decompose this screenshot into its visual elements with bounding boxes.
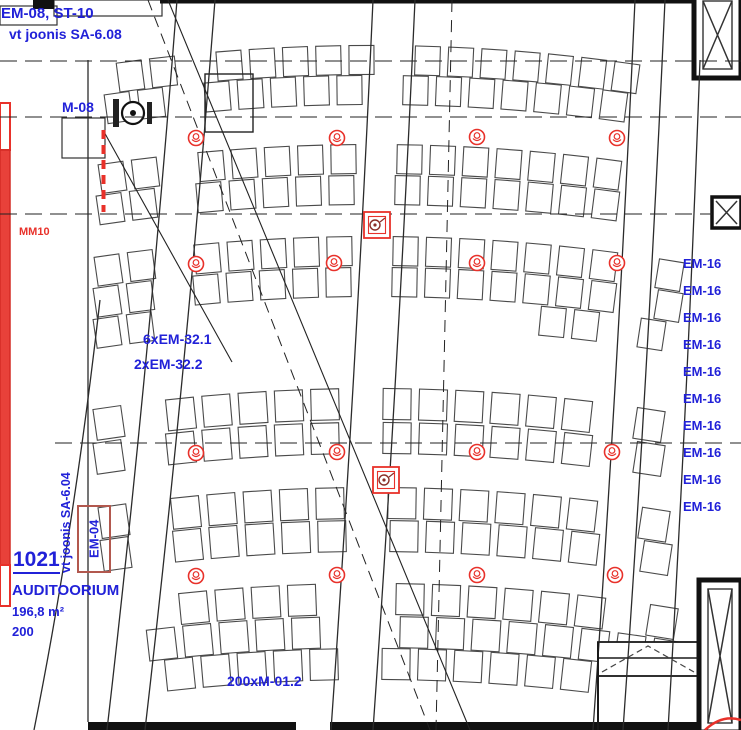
smoke-detector-icon: [610, 131, 625, 146]
seat: [495, 492, 525, 525]
seat: [546, 54, 574, 85]
seat: [489, 652, 519, 685]
seat: [216, 50, 243, 81]
seat: [274, 390, 303, 422]
smoke-detector-icon: [470, 568, 485, 583]
cable-label-em16: EM-16: [683, 446, 721, 460]
seat: [337, 75, 362, 104]
seat: [568, 531, 599, 565]
seat: [526, 182, 554, 213]
seat: [209, 525, 239, 558]
seat: [491, 240, 518, 271]
smoke-detector-icon: [470, 130, 485, 145]
seat: [561, 433, 592, 467]
cable-label-em16: EM-16: [683, 311, 721, 325]
seat: [533, 528, 564, 562]
seat: [561, 399, 592, 433]
seat: [383, 422, 411, 453]
plan-line: [168, 0, 470, 730]
seat: [435, 618, 464, 650]
seat: [304, 76, 330, 106]
seat: [654, 290, 683, 323]
plan-structure: [88, 722, 296, 730]
seat: [400, 617, 429, 649]
seat: [637, 318, 666, 350]
seat: [638, 507, 670, 542]
seat: [245, 523, 275, 556]
cable-label-em16: EM-16: [683, 500, 721, 514]
cable-label-em16: EM-16: [683, 473, 721, 487]
seat: [588, 281, 616, 313]
seat: [279, 489, 308, 521]
seat: [171, 496, 202, 530]
seat: [229, 179, 256, 210]
seat: [96, 193, 125, 225]
seat: [566, 498, 597, 532]
seat: [611, 61, 640, 93]
seat: [424, 268, 450, 298]
seat: [497, 525, 527, 558]
see-drawing-label-sa608: vt joonis SA-6.08: [9, 27, 122, 42]
seat: [556, 277, 584, 309]
plan-line: [103, 130, 232, 362]
plan-structure: [330, 722, 741, 730]
seat: [490, 271, 517, 302]
seat: [528, 151, 556, 182]
seat: [238, 425, 268, 458]
seat: [93, 406, 125, 441]
plan-structure: [0, 103, 10, 150]
seat: [543, 625, 574, 659]
seat: [255, 619, 285, 652]
seat: [93, 440, 125, 475]
pump-symbol: [113, 99, 152, 127]
panel-label-em04: EM-04: [87, 520, 101, 558]
seat: [454, 390, 484, 422]
seat: [382, 648, 410, 679]
seat: [560, 154, 588, 186]
seat: [226, 271, 253, 302]
seat: [215, 588, 245, 621]
smoke-detector-icon: [189, 446, 204, 461]
seat: [503, 588, 533, 621]
seat: [462, 147, 489, 177]
seat: [459, 490, 489, 523]
cable-label-em16: EM-16: [683, 338, 721, 352]
seat: [593, 158, 621, 190]
room-number: 1021: [13, 549, 60, 574]
seat: [298, 145, 324, 175]
cable-label-em16: EM-16: [683, 365, 721, 379]
room-capacity: 200: [12, 625, 34, 639]
seat: [633, 408, 665, 443]
seat: [493, 180, 520, 211]
seat: [461, 523, 491, 556]
room-name: AUDITOORIUM: [12, 583, 119, 599]
plan-structure: [0, 150, 10, 565]
plan-structure: [598, 642, 698, 676]
seat: [468, 78, 495, 108]
seat: [534, 83, 562, 114]
seat: [127, 250, 155, 282]
seat: [501, 80, 528, 111]
seat: [326, 268, 352, 297]
seat: [293, 237, 319, 267]
seat: [262, 177, 288, 207]
seat: [431, 584, 460, 616]
column-shaft-symbol: [694, 0, 741, 78]
smoke-detector-icon: [189, 131, 204, 146]
cable-label-em321: 6xEM-32.1: [143, 332, 211, 347]
device-label-m08: M-08: [62, 100, 94, 115]
seat: [193, 274, 221, 305]
cable-label-em16: EM-16: [683, 257, 721, 271]
seat: [207, 493, 237, 526]
seat: [179, 591, 210, 625]
floor-plan-drawing: [0, 0, 741, 730]
cable-label-em16: EM-16: [683, 392, 721, 406]
seat: [558, 185, 586, 217]
smoke-detector-icon: [327, 256, 342, 271]
seat: [282, 47, 308, 77]
smoke-detector-icon: [330, 131, 345, 146]
smoke-detector-icon: [608, 568, 623, 583]
seat: [296, 176, 322, 206]
seat: [525, 655, 556, 688]
seat: [274, 424, 303, 456]
seat: [237, 79, 264, 110]
seat: [513, 51, 540, 82]
plan-structure: [0, 565, 10, 606]
seat: [524, 243, 552, 274]
smoke-detector-icon: [605, 445, 620, 460]
seat: [395, 176, 421, 205]
seat: [329, 176, 354, 205]
seat: [251, 586, 281, 619]
floor-plan-canvas: EM-08, ST-10 vt joonis SA-6.08 M-08 MM10…: [0, 0, 741, 730]
seat: [571, 310, 599, 342]
plan-structure: [160, 0, 697, 4]
smoke-detector-icon: [189, 257, 204, 272]
seat: [526, 429, 557, 462]
room-area: 196,8 m²: [12, 605, 64, 619]
seat-type-label: 200xM-01.2: [227, 674, 302, 689]
seat: [287, 584, 316, 616]
seat: [566, 86, 594, 118]
seat: [633, 442, 665, 477]
seat: [578, 57, 606, 89]
seat: [331, 145, 356, 174]
cable-label-em16: EM-16: [683, 284, 721, 298]
plan-line: [593, 0, 635, 730]
seat: [227, 240, 254, 271]
seat: [183, 624, 214, 658]
seat: [264, 146, 290, 176]
seat: [243, 490, 273, 523]
seat: [165, 397, 196, 431]
seat: [238, 391, 268, 424]
seat: [131, 157, 159, 189]
plan-structure: [62, 118, 105, 158]
seat: [116, 60, 145, 92]
seat: [557, 246, 585, 278]
seat: [292, 268, 318, 298]
em04-panel-box: EM-04: [77, 505, 111, 573]
smoke-detector-icon: [189, 569, 204, 584]
seat: [640, 541, 672, 576]
seat: [219, 621, 249, 654]
smoke-detector-icon: [470, 256, 485, 271]
seat: [425, 237, 451, 267]
seat: [202, 428, 233, 461]
seat: [146, 627, 177, 661]
cable-label-em16: EM-16: [683, 419, 721, 433]
seat: [392, 268, 418, 297]
smoke-detector-icon: [330, 445, 345, 460]
seat: [93, 285, 122, 317]
smoke-detector-icon: [610, 256, 625, 271]
seat: [526, 395, 557, 428]
seat: [471, 619, 501, 652]
junction-box-icon: [373, 467, 399, 493]
seat: [318, 521, 347, 553]
seat: [427, 176, 453, 206]
seat: [531, 495, 562, 529]
plan-line: [436, 0, 452, 730]
seat: [507, 622, 537, 655]
seat: [591, 189, 619, 221]
seat: [480, 49, 507, 80]
seat: [423, 488, 452, 520]
smoke-detector-icon: [330, 568, 345, 583]
seat: [270, 77, 296, 107]
annotation-label-mm10: MM10: [19, 227, 50, 239]
column-shaft-symbol: [712, 197, 741, 228]
seat: [467, 586, 497, 619]
seat: [393, 237, 419, 266]
seat: [539, 591, 570, 625]
seat: [457, 270, 484, 300]
seat: [655, 259, 684, 292]
seat: [164, 657, 195, 691]
seat: [435, 77, 461, 107]
reference-label-em08-st10: EM-08, ST-10: [1, 6, 94, 22]
seat: [397, 145, 423, 175]
column-shaft-symbol: [699, 580, 741, 730]
smoke-detector-icon: [470, 445, 485, 460]
see-drawing-label-sa604: vt joonis SA-6.04: [60, 472, 73, 573]
seat: [460, 178, 487, 208]
plan-line: [373, 0, 415, 730]
seat: [429, 145, 455, 175]
seat: [94, 254, 123, 286]
seat: [539, 306, 567, 337]
seat: [202, 394, 233, 427]
seat: [490, 392, 520, 425]
seat: [316, 488, 345, 520]
seat: [403, 76, 429, 106]
seat: [129, 188, 157, 220]
seat: [417, 649, 446, 681]
seat: [291, 617, 320, 649]
cable-label-em322: 2xEM-32.2: [134, 357, 202, 372]
seat: [281, 522, 310, 554]
seat: [173, 528, 204, 562]
seat: [453, 650, 483, 682]
seat: [523, 274, 550, 305]
seat: [560, 658, 591, 692]
seat: [383, 388, 411, 419]
plan-line: [331, 0, 373, 730]
seat: [495, 149, 522, 180]
junction-box-icon: [364, 212, 390, 238]
seat: [310, 649, 339, 681]
